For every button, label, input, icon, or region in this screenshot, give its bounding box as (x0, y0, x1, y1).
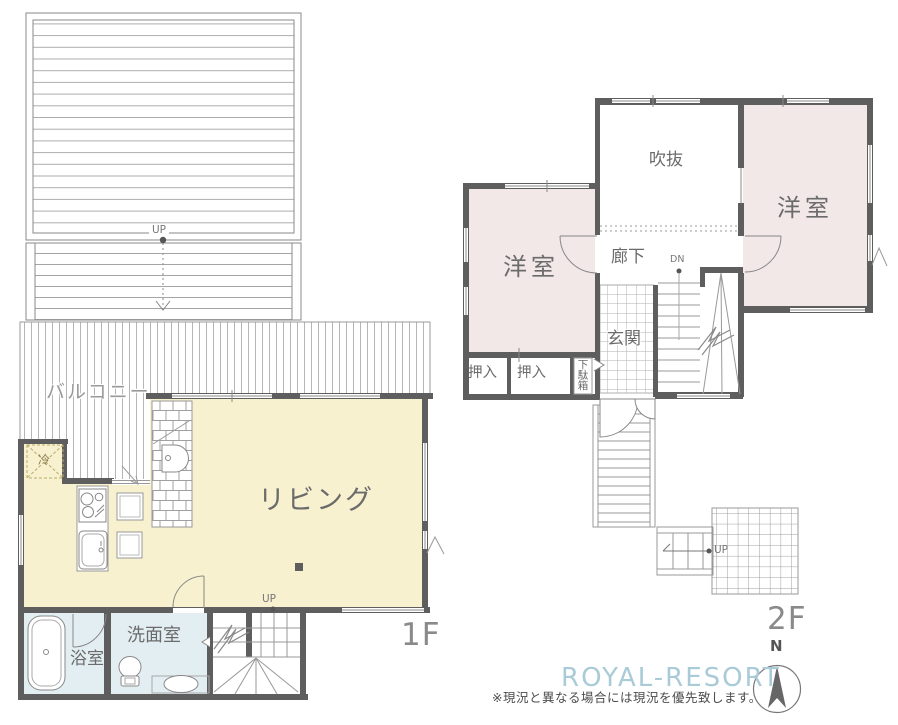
shoe-cabinet-label: 下駄箱 (577, 359, 588, 391)
stairs-2f (658, 269, 740, 395)
stairs-up-dot (271, 607, 276, 612)
slope-up-label: UP (149, 225, 169, 236)
bathtub (28, 616, 65, 690)
living-label: リビング (258, 487, 374, 514)
floor2-label: 2F (767, 604, 807, 635)
floorplan-canvas: UP バルコニー 冷 リビング UP 浴室 洗面室 1F 吹抜 洋室 洋室 廊下… (0, 0, 898, 725)
stairs-dn-dot (677, 269, 682, 274)
washroom-label: 洗面室 (127, 627, 181, 645)
disclaimer-text: ※現況と異なる場合には現況を優先致します。 (492, 692, 762, 705)
entrance-label: 玄関 (607, 331, 641, 348)
hearth (152, 401, 192, 527)
bedroom-right-label: 洋室 (777, 196, 833, 220)
balcony-label: バルコニー (46, 383, 151, 402)
compass-north-label: N (770, 639, 783, 654)
slope-terrace (26, 13, 301, 320)
brand-logo: ROYAL-RESORT (561, 665, 781, 691)
toilet (119, 657, 141, 678)
outside-up-label: UP (714, 545, 728, 556)
bedroom-left-label: 洋室 (503, 255, 559, 279)
floors-2f (468, 104, 868, 393)
outside-up-dot (707, 549, 712, 554)
counter-stool (117, 493, 143, 520)
pillar (295, 563, 303, 571)
closet-right-label: 押入 (517, 366, 546, 381)
counter-stool (117, 532, 142, 558)
corridor-label: 廊下 (611, 249, 645, 266)
fridge-label: 冷 (38, 454, 50, 466)
bathroom-label: 浴室 (70, 651, 104, 668)
washbasin (164, 676, 198, 693)
floorplan-linework (0, 0, 898, 725)
stairs-1f (213, 607, 300, 695)
void-label: 吹抜 (649, 152, 683, 169)
closet-left-label: 押入 (468, 366, 497, 381)
stairs-up-label: UP (262, 594, 276, 605)
floor1-label: 1F (401, 620, 441, 651)
outside-stairs (593, 399, 798, 594)
slope-up-origin-dot (160, 237, 166, 243)
stairs-dn-label: DN (670, 255, 684, 265)
